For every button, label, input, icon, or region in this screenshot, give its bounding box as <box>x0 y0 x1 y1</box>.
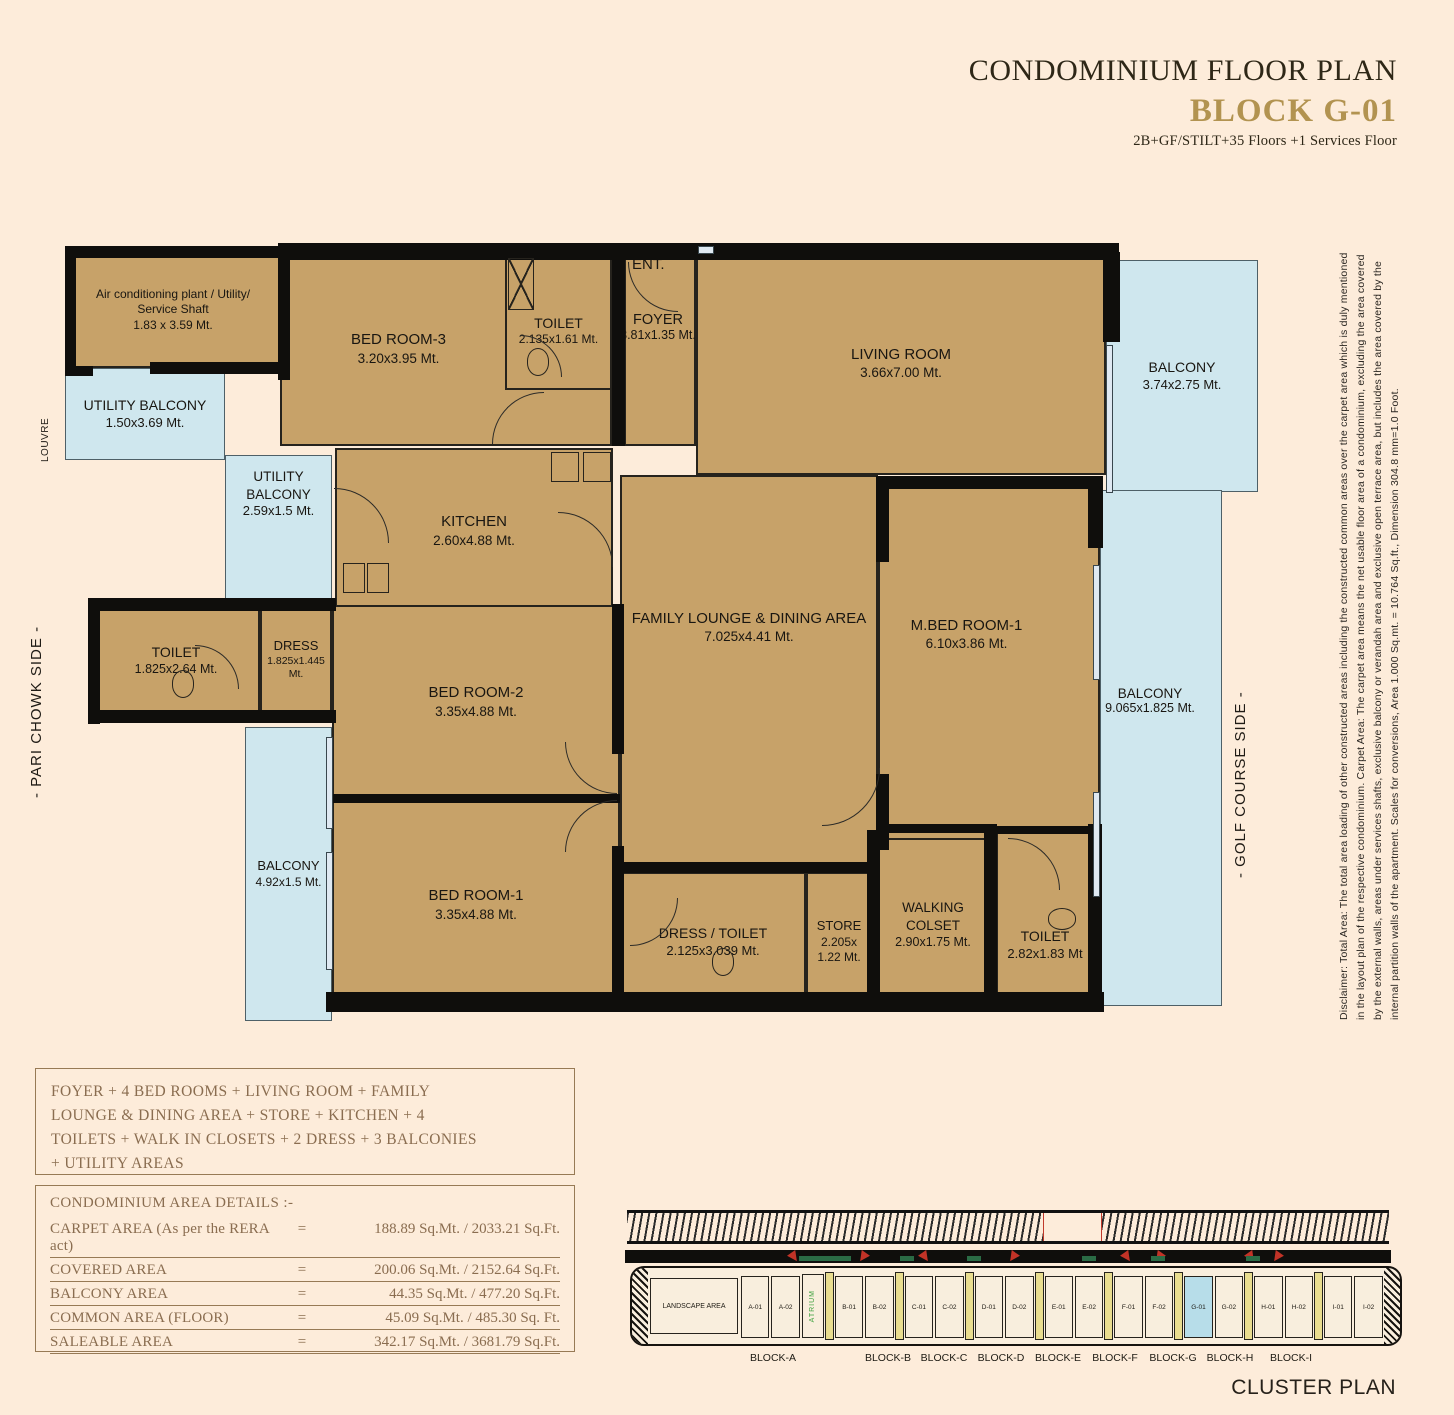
wall-segment <box>88 598 100 724</box>
cluster-unit: I-01 <box>1324 1276 1352 1338</box>
cluster-core-strip <box>1314 1272 1323 1340</box>
room-label: DRESS / TOILET <box>659 924 767 942</box>
cluster-block-label: BLOCK-H <box>1197 1352 1263 1364</box>
cluster-unit: E-01 <box>1045 1276 1073 1338</box>
area-row-saleable: SALEABLE AREA=342.17 Sq.Mt. / 3681.79 Sq… <box>50 1330 560 1354</box>
wall-segment <box>65 246 282 258</box>
side-label-pari-chowk: - PARI CHOWK SIDE - <box>28 548 45 798</box>
room-label: UTILITY BALCONY <box>84 396 207 414</box>
cluster-unit-highlighted: G-01 <box>1184 1276 1212 1338</box>
disclaimer-line: in the layout plan of the respective con… <box>1355 205 1367 1020</box>
room-label: KITCHEN <box>433 512 515 532</box>
cluster-unit: G-02 <box>1215 1276 1243 1338</box>
wall-segment <box>88 710 336 723</box>
window-glass <box>326 852 333 970</box>
cluster-road <box>627 1210 1389 1244</box>
cluster-atrium: ATRIUM <box>802 1274 824 1338</box>
summary-box: FOYER + 4 BED ROOMS + LIVING ROOM + FAMI… <box>35 1068 575 1175</box>
wall-segment <box>876 824 986 833</box>
cluster-unit: A-01 <box>741 1276 769 1338</box>
window-glass <box>326 737 333 829</box>
cluster-end-cap <box>632 1268 648 1344</box>
side-label-golf-course: - GOLF COURSE SIDE - <box>1232 628 1249 878</box>
cluster-building-strip: LANDSCAPE AREA A-01 A-02 ATRIUM B-01 B-0… <box>630 1266 1402 1346</box>
wall-segment <box>1103 252 1120 342</box>
disclaimer-line: internal partition walls of the apartmen… <box>1389 205 1401 1020</box>
green-dash <box>967 1256 981 1261</box>
wall-segment <box>618 862 876 873</box>
room-label: FAMILY LOUNGE & DINING AREA <box>632 609 867 629</box>
cluster-unit: I-02 <box>1354 1276 1382 1338</box>
room-balcony-top-right: BALCONY3.74x2.75 Mt. <box>1106 260 1258 492</box>
room-label: STORE <box>808 918 870 935</box>
header: CONDOMINIUM FLOOR PLAN BLOCK G-01 2B+GF/… <box>969 54 1397 150</box>
cluster-unit: F-01 <box>1114 1276 1142 1338</box>
cluster-core-strip <box>1035 1272 1044 1340</box>
wall-segment <box>65 246 76 368</box>
cluster-unit: B-01 <box>835 1276 863 1338</box>
kitchen-sink-icon <box>343 563 365 593</box>
cluster-unit: C-02 <box>935 1276 963 1338</box>
cluster-unit: D-02 <box>1005 1276 1033 1338</box>
room-utility-balcony-2: UTILITY BALCONY2.59x1.5 Mt. <box>225 455 332 603</box>
room-living-room: LIVING ROOM3.66x7.00 Mt. <box>696 252 1106 475</box>
cluster-plan-title: CLUSTER PLAN <box>1190 1376 1396 1400</box>
room-label: LIVING ROOM <box>851 345 951 365</box>
green-dash <box>1082 1256 1096 1261</box>
room-label: M.BED ROOM-1 <box>911 616 1023 636</box>
cluster-block-label: BLOCK-A <box>740 1352 806 1364</box>
cluster-unit: C-01 <box>905 1276 933 1338</box>
wall-segment <box>612 604 624 754</box>
disclaimer-line: Disclaimer: Total Area: The total area l… <box>1338 205 1350 1020</box>
block-subtitle: 2B+GF/STILT+35 Floors +1 Services Floor <box>969 133 1397 150</box>
kitchen-counter-icon <box>551 452 579 482</box>
toilet-fixture-icon <box>712 948 734 976</box>
room-master-bed-room: M.BED ROOM-16.10x3.86 Mt. <box>878 478 1100 846</box>
cluster-end-cap <box>1384 1268 1400 1344</box>
room-balcony-right <box>1100 490 1222 1006</box>
wall-segment <box>1088 476 1103 548</box>
cluster-block-label: BLOCK-I <box>1258 1352 1324 1364</box>
window-glass <box>1106 345 1113 493</box>
green-dash <box>1151 1256 1165 1261</box>
kitchen-sink-icon <box>367 563 389 593</box>
wall-segment <box>984 824 997 1008</box>
toilet-fixture-icon <box>527 348 549 376</box>
cluster-core-strip <box>1104 1272 1113 1340</box>
wall-segment <box>65 366 93 376</box>
cluster-landscape-area: LANDSCAPE AREA <box>650 1278 738 1334</box>
balcony-right-label: BALCONY 9.065x1.825 Mt. <box>1078 686 1222 715</box>
room-toilet-left: TOILET1.825x2.64 Mt. <box>92 605 260 715</box>
room-label: Air conditioning plant / Utility/ Servic… <box>77 287 269 318</box>
cluster-block-label: BLOCK-F <box>1082 1352 1148 1364</box>
area-row-carpet: CARPET AREA (As per the RERA act)=188.89… <box>50 1217 560 1258</box>
cluster-unit: D-01 <box>975 1276 1003 1338</box>
room-balcony-left: BALCONY4.92x1.5 Mt. <box>245 727 332 1021</box>
disclaimer-line: by the external walls, areas under servi… <box>1372 205 1384 1020</box>
area-row-covered: COVERED AREA=200.06 Sq.Mt. / 2152.64 Sq.… <box>50 1258 560 1282</box>
cluster-unit: H-02 <box>1285 1276 1313 1338</box>
wall-segment <box>876 476 889 562</box>
room-label: WALKING COLSET <box>880 899 986 934</box>
room-label: BALCONY <box>1143 358 1222 376</box>
wall-segment <box>612 252 625 446</box>
cluster-core-strip <box>1244 1272 1253 1340</box>
summary-line: FOYER + 4 BED ROOMS + LIVING ROOM + FAMI… <box>51 1080 559 1104</box>
wall-segment <box>150 362 282 374</box>
block-title: BLOCK G-01 <box>969 93 1397 130</box>
shaft-icon <box>508 258 534 310</box>
room-ac-shaft: Air conditioning plant / Utility/ Servic… <box>65 252 281 368</box>
green-dash <box>799 1256 851 1261</box>
room-label: BED ROOM-3 <box>351 330 446 350</box>
area-details-title: CONDOMINIUM AREA DETAILS :- <box>50 1195 560 1212</box>
summary-line: LOUNGE & DINING AREA + STORE + KITCHEN +… <box>51 1104 559 1128</box>
green-dash <box>1246 1256 1260 1261</box>
wall-segment <box>876 476 1103 489</box>
room-label: TOILET <box>519 314 598 332</box>
cluster-unit: B-02 <box>865 1276 893 1338</box>
floor-plan-sheet: CONDOMINIUM FLOOR PLAN BLOCK G-01 2B+GF/… <box>0 0 1454 1415</box>
room-store: STORE2.205x 1.22 Mt. <box>806 872 872 1012</box>
summary-line: TOILETS + WALK IN CLOSETS + 2 DRESS + 3 … <box>51 1128 559 1152</box>
cluster-unit: E-02 <box>1075 1276 1103 1338</box>
room-utility-balcony-1: UTILITY BALCONY1.50x3.69 Mt. <box>65 368 225 460</box>
cluster-core-strip <box>825 1272 834 1340</box>
room-label: BED ROOM-2 <box>428 683 523 703</box>
cluster-core-strip <box>1174 1272 1183 1340</box>
wall-segment <box>867 830 880 1008</box>
cluster-entrance-gap <box>1043 1213 1102 1241</box>
cluster-core-strip <box>965 1272 974 1340</box>
room-label: BALCONY <box>255 858 321 875</box>
louvre-label: LOUVRE <box>40 400 51 462</box>
area-row-balcony: BALCONY AREA=44.35 Sq.Mt. / 477.20 Sq.Ft… <box>50 1282 560 1306</box>
kitchen-counter-icon <box>583 452 611 482</box>
window-glass <box>1093 565 1100 680</box>
cluster-unit: H-01 <box>1254 1276 1282 1338</box>
area-row-common: COMMON AREA (FLOOR)=45.09 Sq.Mt. / 485.3… <box>50 1306 560 1330</box>
toilet-fixture-icon <box>1048 908 1076 930</box>
room-label: BED ROOM-1 <box>428 886 523 906</box>
area-details-box: CONDOMINIUM AREA DETAILS :- CARPET AREA … <box>35 1185 575 1352</box>
room-dress: DRESS1.825x1.445 Mt. <box>260 605 332 715</box>
cluster-unit: A-02 <box>771 1276 799 1338</box>
entrance-door-leaf <box>698 246 714 254</box>
window-glass <box>1093 792 1100 897</box>
room-label: TOILET <box>1007 927 1082 945</box>
cluster-unit: F-02 <box>1145 1276 1173 1338</box>
wall-segment <box>332 794 620 803</box>
wall-segment <box>995 826 1090 834</box>
room-label: DRESS <box>262 638 330 655</box>
toilet-fixture-icon <box>172 670 194 698</box>
cluster-core-strip <box>895 1272 904 1340</box>
green-dash <box>900 1256 914 1261</box>
wall-segment <box>278 252 290 380</box>
room-walking-closet: WALKING COLSET2.90x1.75 Mt. <box>878 838 988 1012</box>
wall-segment <box>88 598 336 611</box>
room-label: UTILITY BALCONY <box>226 468 331 503</box>
summary-line: + UTILITY AREAS <box>51 1152 559 1176</box>
page-title: CONDOMINIUM FLOOR PLAN <box>969 54 1397 88</box>
